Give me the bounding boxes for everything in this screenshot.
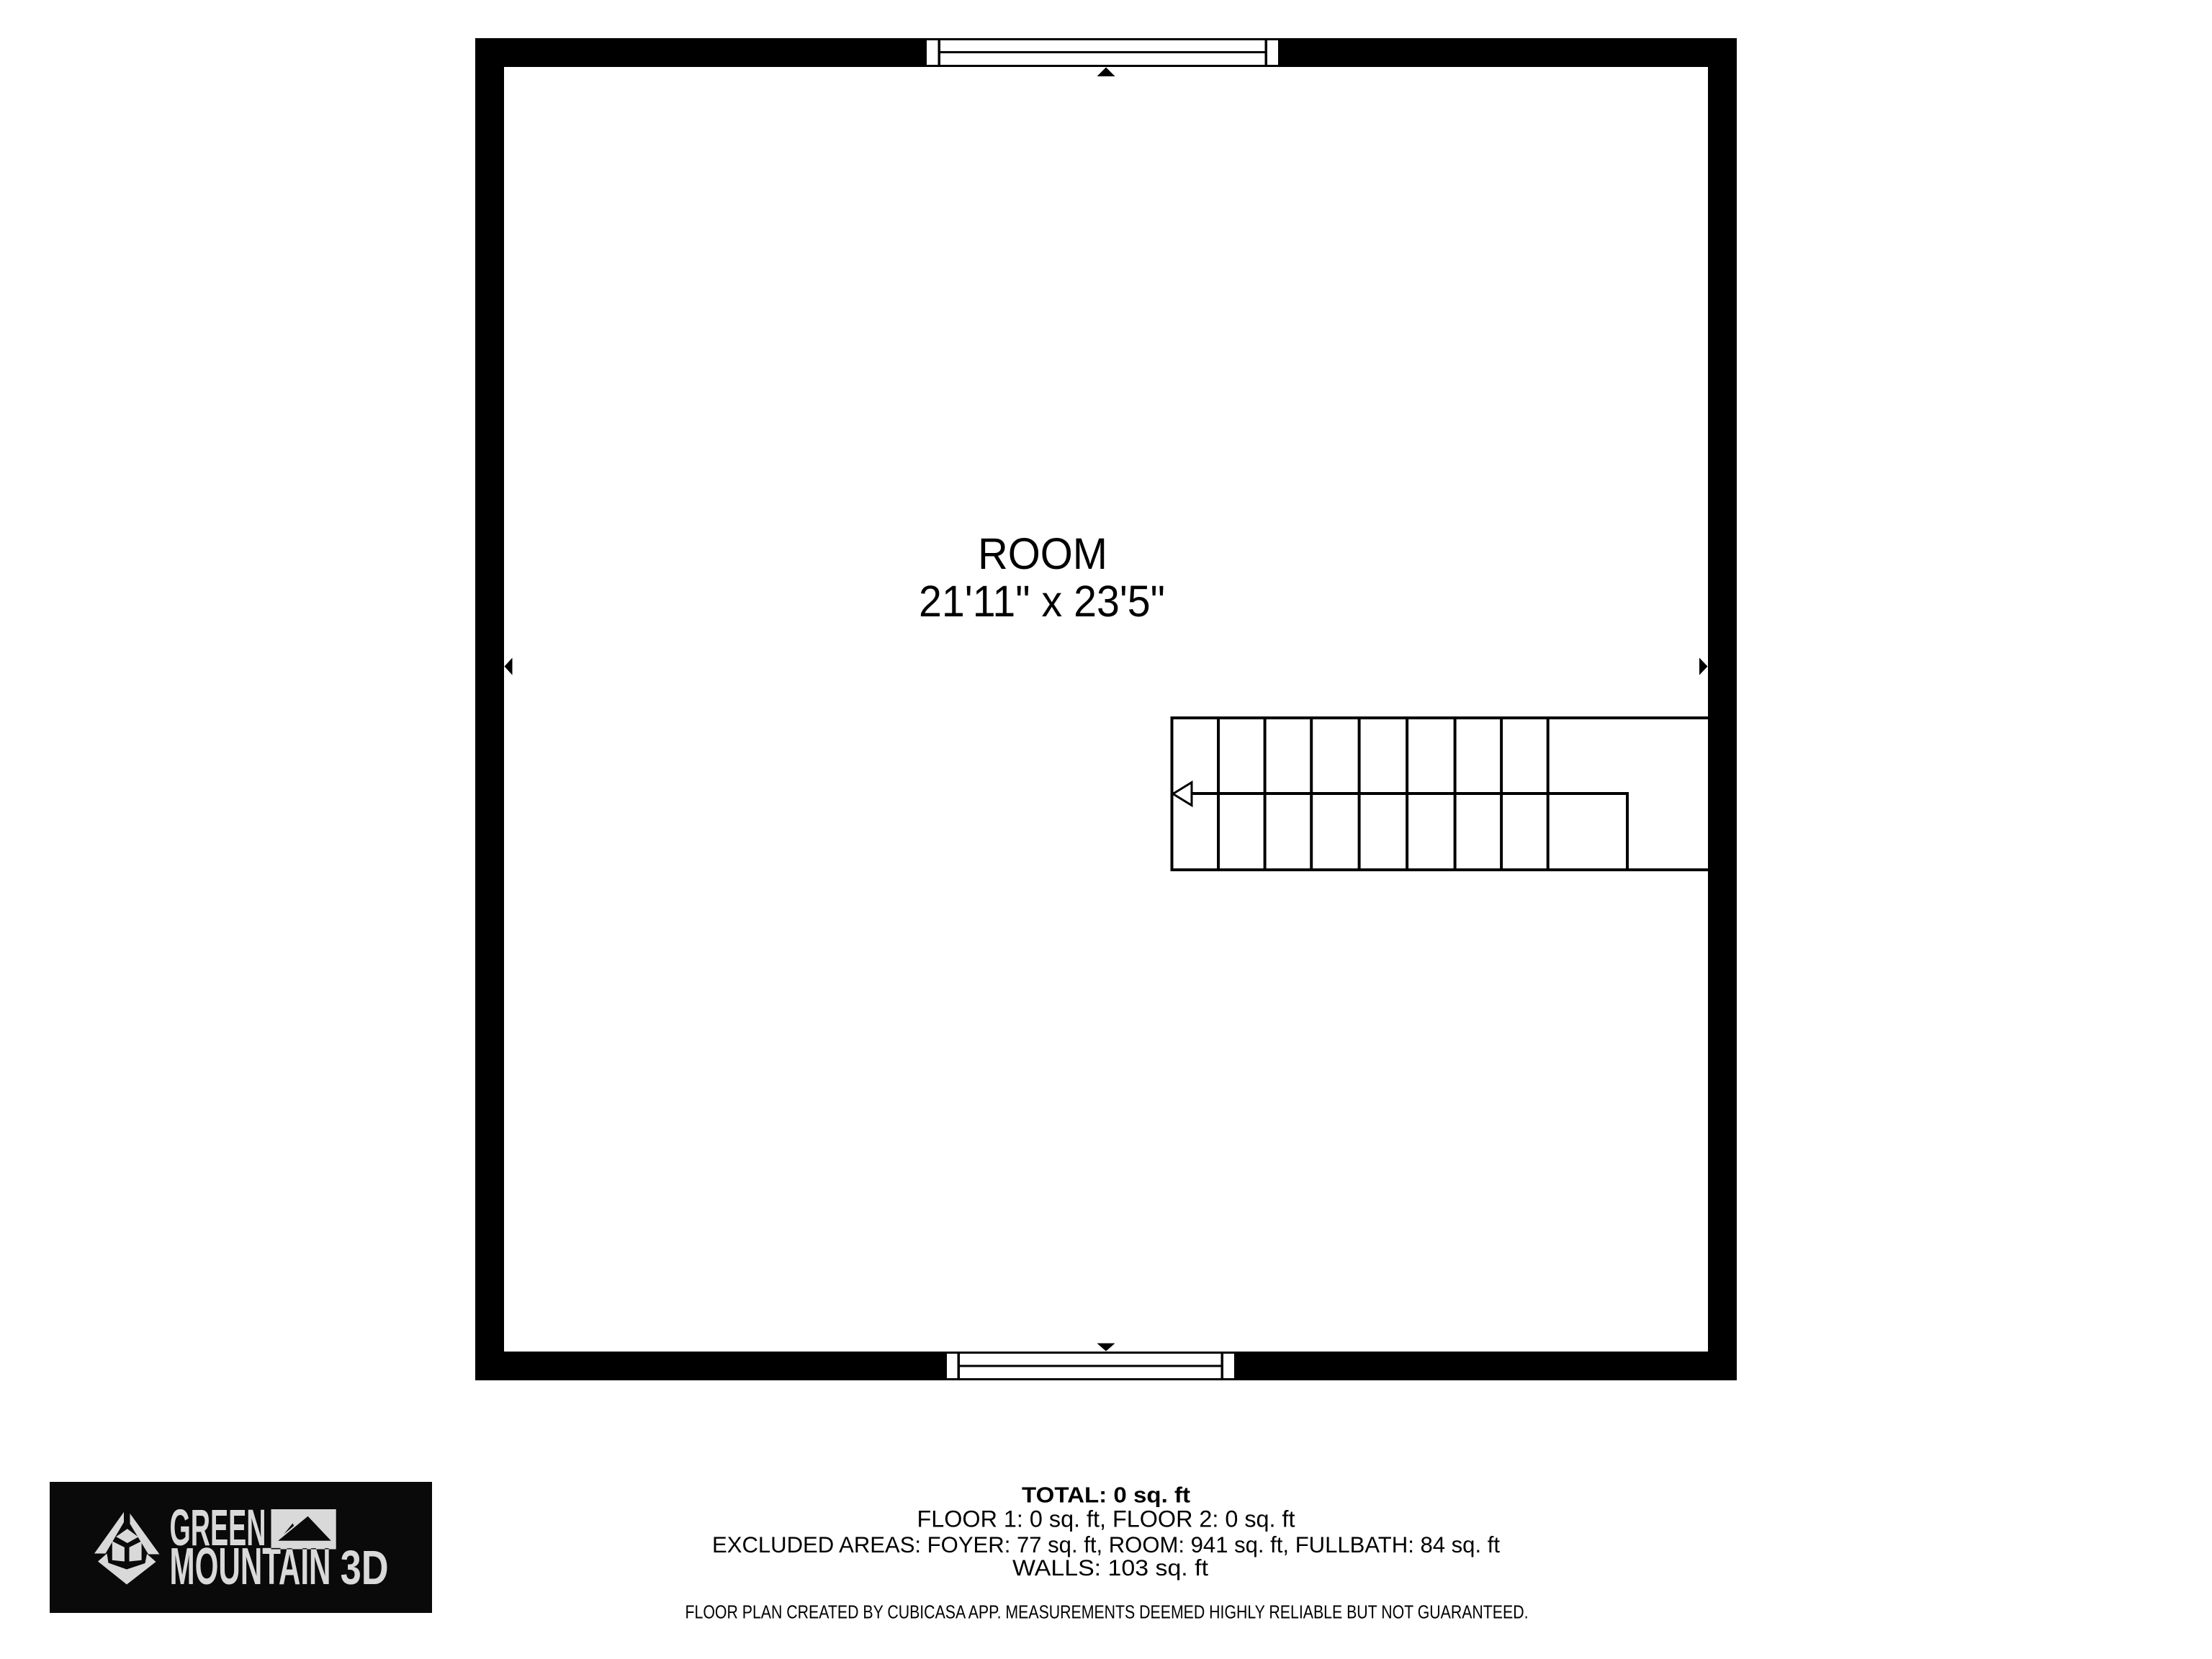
svg-text:WALLS: 103 sq. ft: WALLS: 103 sq. ft: [1012, 1555, 1208, 1581]
svg-text:EXCLUDED AREAS: FOYER: 77 sq.: EXCLUDED AREAS: FOYER: 77 sq. ft, ROOM: …: [712, 1532, 1500, 1557]
svg-text:FLOOR 1: 0 sq. ft, FLOOR 2: 0: FLOOR 1: 0 sq. ft, FLOOR 2: 0 sq. ft: [917, 1506, 1295, 1532]
svg-text:FLOOR PLAN CREATED BY CUBICASA: FLOOR PLAN CREATED BY CUBICASA APP. MEAS…: [685, 1603, 1529, 1623]
svg-text:21'11" x 23'5": 21'11" x 23'5": [919, 577, 1165, 626]
svg-text:TOTAL: 0 sq. ft: TOTAL: 0 sq. ft: [1022, 1483, 1190, 1508]
svg-text:ROOM: ROOM: [978, 529, 1107, 578]
svg-text:3D: 3D: [341, 1541, 389, 1595]
